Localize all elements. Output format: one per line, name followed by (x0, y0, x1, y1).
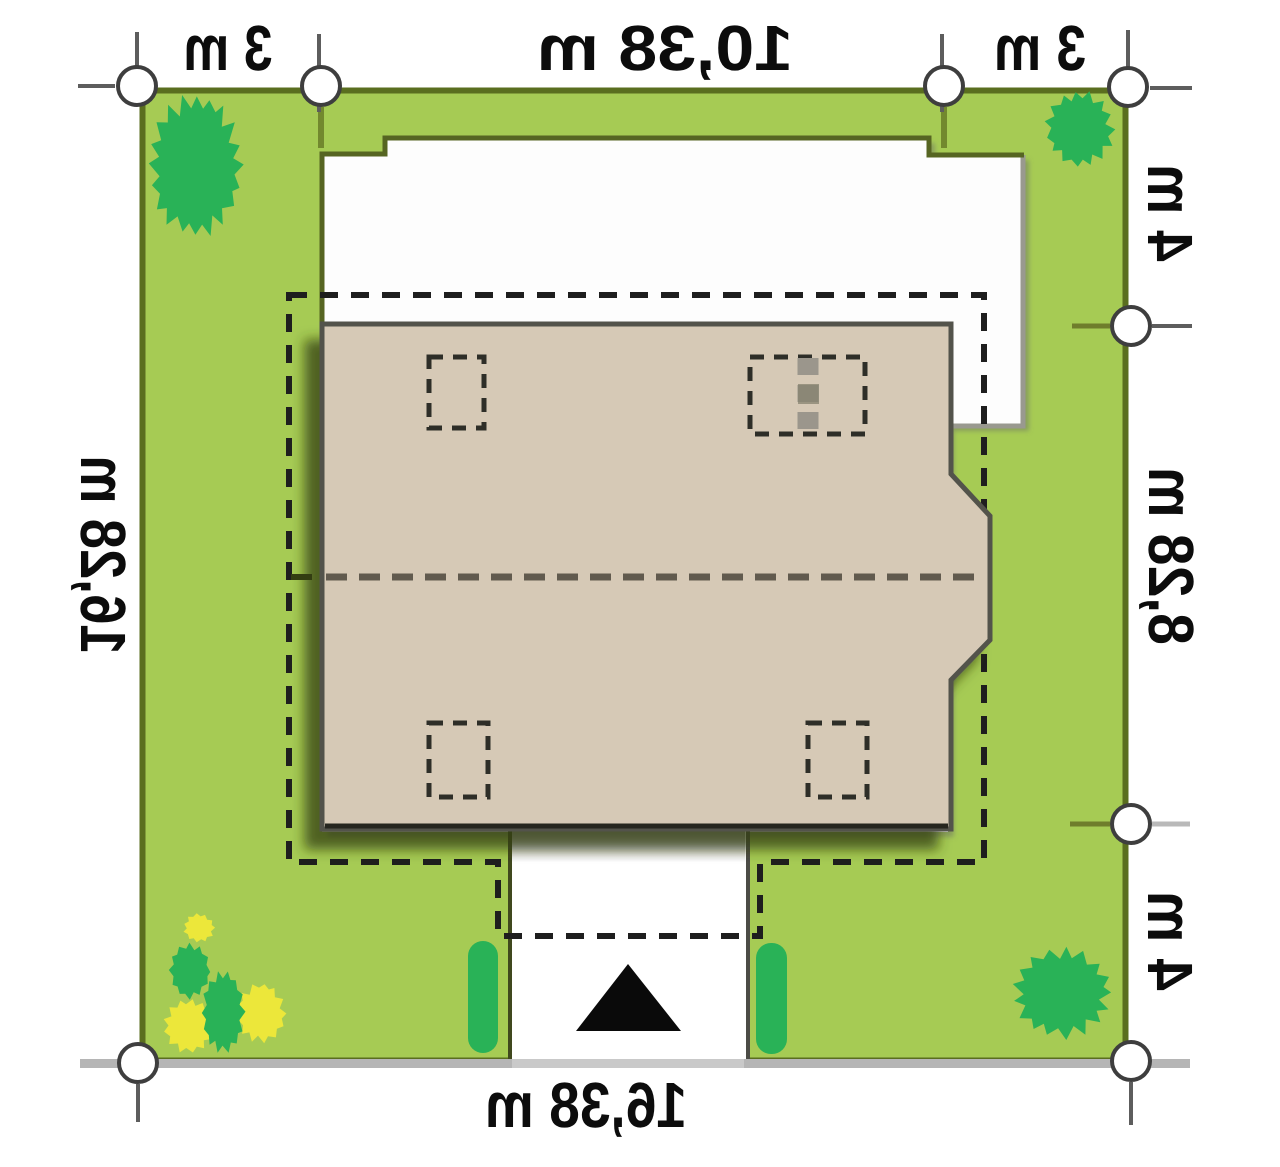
svg-text:4 m: 4 m (1134, 164, 1206, 262)
svg-text:3 m: 3 m (994, 12, 1086, 84)
svg-text:10,38 m: 10,38 m (537, 12, 793, 84)
svg-text:16,38 m: 16,38 m (485, 1069, 687, 1141)
svg-text:3 m: 3 m (184, 12, 273, 84)
svg-text:16,28 m: 16,28 m (67, 456, 139, 655)
svg-text:4 m: 4 m (1134, 891, 1206, 991)
svg-text:8,28 m: 8,28 m (1135, 467, 1207, 645)
